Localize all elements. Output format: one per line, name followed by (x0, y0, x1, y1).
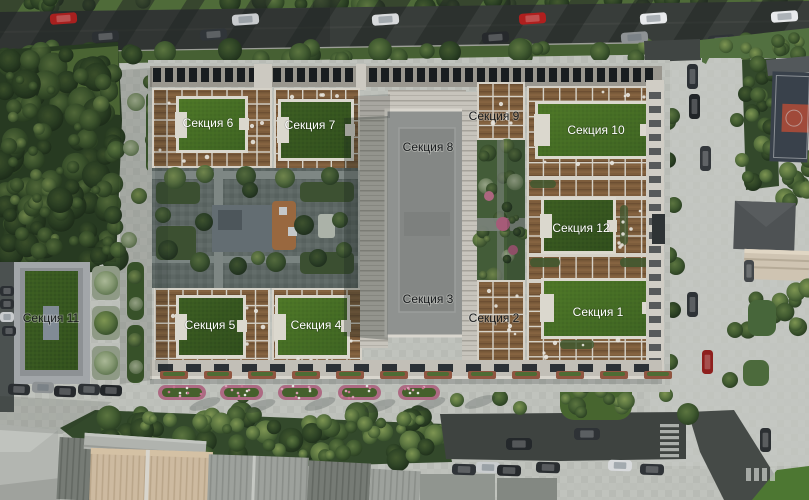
svg-text:Секция 2: Секция 2 (469, 311, 520, 325)
svg-text:Секция 6: Секция 6 (183, 116, 234, 130)
svg-text:Секция 12: Секция 12 (552, 221, 610, 235)
svg-text:Секция 1: Секция 1 (573, 305, 624, 319)
svg-text:Секция 5: Секция 5 (185, 318, 236, 332)
svg-text:Секция 8: Секция 8 (403, 140, 454, 154)
svg-text:Секция 7: Секция 7 (285, 118, 336, 132)
svg-text:Секция 4: Секция 4 (291, 318, 342, 332)
svg-text:Секция 11: Секция 11 (23, 311, 80, 325)
svg-text:Секция 10: Секция 10 (567, 123, 625, 137)
svg-text:Секция 3: Секция 3 (403, 292, 454, 306)
svg-text:Секция 9: Секция 9 (469, 109, 520, 123)
